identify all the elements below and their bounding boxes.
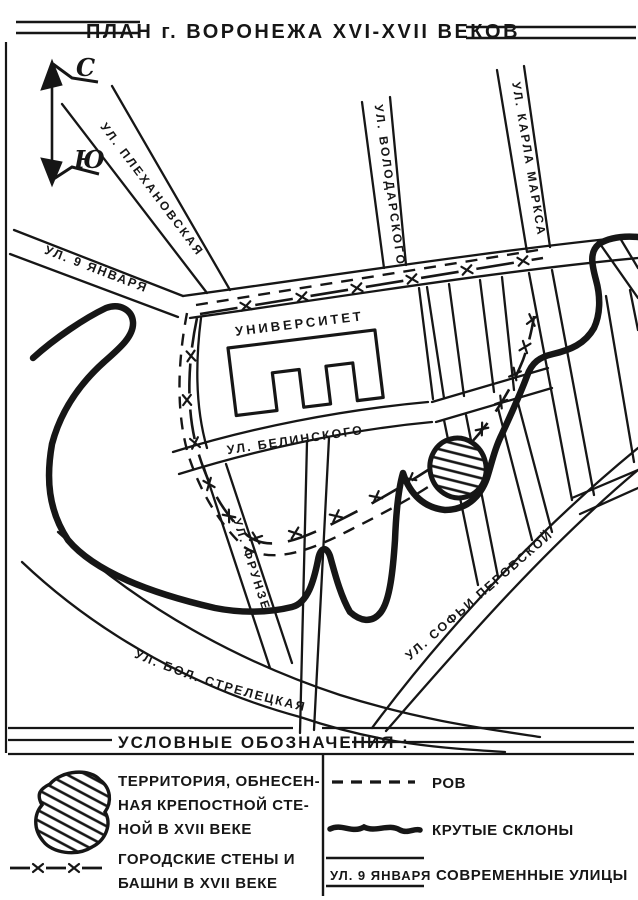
wall-towers-symbol [10, 864, 104, 872]
legend-modern-streets-label: СОВРЕМЕННЫЕ УЛИЦЫ [436, 867, 628, 884]
legend-territory-line3: НОЙ В XVII ВЕКЕ [118, 820, 252, 838]
street-label-plekhanovskaya: УЛ. ПЛЕХАНОВСКАЯ [97, 120, 206, 259]
legend-item-walls: ГОРОДСКИЕ СТЕНЫ И БАШНИ В XVII ВЕКЕ [118, 851, 295, 892]
title-block: ПЛАН г. ВОРОНЕЖА XVI-XVII ВЕКОВ [16, 21, 636, 43]
scanned-map-page: ПЛАН г. ВОРОНЕЖА XVI-XVII ВЕКОВ С Ю [0, 0, 638, 900]
hatched-area-symbol [36, 772, 110, 853]
compass-north-label: С [76, 53, 95, 82]
modern-street-symbol: УЛ. 9 ЯНВАРЯ [326, 858, 431, 886]
street-label-belinskogo: УЛ. БЕЛИНСКОГО [226, 423, 365, 457]
legend-moat-label: РОВ [432, 775, 466, 792]
svg-text:УЛ. БОЛ. СТРЕЛЕЦКАЯ: УЛ. БОЛ. СТРЕЛЕЦКАЯ [133, 647, 308, 714]
page-title: ПЛАН г. ВОРОНЕЖА XVI-XVII ВЕКОВ [86, 21, 520, 43]
legend-item-territory: ТЕРРИТОРИЯ, ОБНЕСЕН- НАЯ КРЕПОСТНОЙ СТЕ-… [118, 773, 320, 838]
legend-walls-line1: ГОРОДСКИЕ СТЕНЫ И [118, 851, 295, 868]
thick-line-symbol [330, 827, 420, 831]
legend-street-sample-text: УЛ. 9 ЯНВАРЯ [330, 868, 431, 883]
university-building [228, 330, 383, 416]
compass-south-label: Ю [73, 145, 105, 174]
legend-section: УСЛОВНЫЕ ОБОЗНАЧЕНИЯ : ТЕРРИТОРИЯ, ОБНЕС… [8, 728, 634, 896]
compass-north-arrow [41, 60, 62, 90]
legend-territory-line1: ТЕРРИТОРИЯ, ОБНЕСЕН- [118, 773, 320, 790]
legend-territory-line2: НАЯ КРЕПОСТНОЙ СТЕ- [118, 796, 309, 814]
compass-south-arrow [41, 158, 62, 186]
legend-walls-line2: БАШНИ В XVII ВЕКЕ [118, 875, 278, 892]
street-label-sofyi-perovskoy: УЛ. СОФЬИ ПЕРОВСКОЙ [402, 526, 556, 662]
legend-heading: УСЛОВНЫЕ ОБОЗНАЧЕНИЯ : [118, 733, 410, 752]
voronezh-plan-svg: ПЛАН г. ВОРОНЕЖА XVI-XVII ВЕКОВ С Ю [0, 0, 638, 900]
street-label-volodarskogo: УЛ. ВОЛОДАРСКОГО [372, 104, 409, 268]
street-label-bol-streletskaya: УЛ. БОЛ. СТРЕЛЕЦКАЯ [133, 647, 308, 714]
legend-slopes-label: КРУТЫЕ СКЛОНЫ [432, 822, 574, 839]
street-labels-layer: УЛ. 9 ЯНВАРЯ УЛ. ПЛЕХАНОВСКАЯ УЛ. ВОЛОДА… [43, 81, 556, 714]
